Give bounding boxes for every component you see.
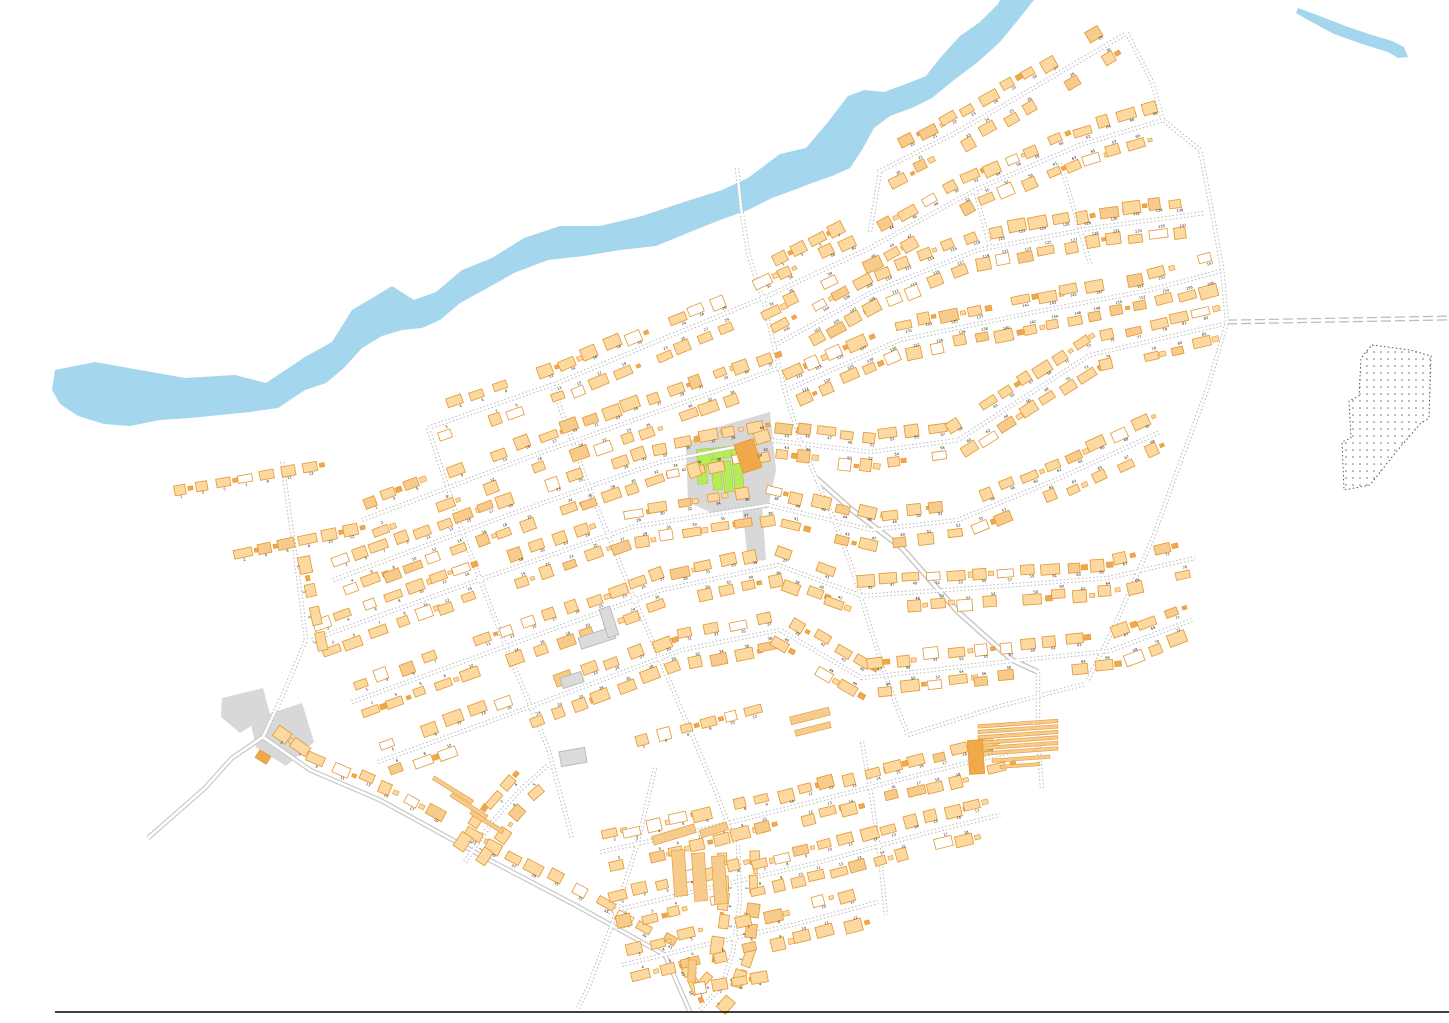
house-number: 120 <box>998 236 1006 241</box>
shed <box>1106 562 1113 568</box>
building <box>840 431 853 441</box>
house-number: 51 <box>926 529 931 534</box>
house-number: 1 <box>180 495 183 499</box>
building <box>772 879 785 893</box>
house-number: 59 <box>1029 574 1035 578</box>
house-number: 136 <box>1176 208 1184 213</box>
building <box>1064 241 1078 254</box>
building <box>450 543 467 556</box>
building <box>730 825 751 841</box>
house-number: 8 <box>504 389 508 394</box>
shed <box>1040 325 1046 330</box>
house-number: 4 <box>662 947 666 952</box>
house-number: 3 <box>500 799 505 803</box>
shed <box>974 834 981 840</box>
building <box>951 264 968 279</box>
house-number: 3 <box>331 640 335 645</box>
building <box>580 498 597 511</box>
house-number: 24 <box>993 99 1000 105</box>
building <box>259 469 275 480</box>
shed <box>738 427 743 432</box>
house-number: 52 <box>935 675 940 679</box>
building <box>216 477 231 488</box>
house-number: 8 <box>443 674 447 679</box>
building <box>1051 589 1065 599</box>
house-number: 3 <box>800 252 804 257</box>
house-number: 15 <box>896 770 901 775</box>
house-number: 133 <box>925 322 933 327</box>
shed <box>783 910 790 916</box>
house-number: 61 <box>1052 161 1058 166</box>
shed <box>988 571 994 576</box>
shed <box>721 493 728 499</box>
house-number: 63 <box>1071 479 1077 485</box>
house-number: 12 <box>752 714 757 719</box>
building <box>668 811 687 824</box>
house-number: 22 <box>952 119 958 125</box>
building <box>711 521 729 532</box>
house-number: 5 <box>223 487 226 491</box>
house-number: 77 <box>1136 335 1141 340</box>
building <box>437 602 454 616</box>
house-number: 46 <box>912 214 919 220</box>
building <box>934 835 954 849</box>
house-number: 5 <box>307 616 311 619</box>
west-road <box>263 462 306 737</box>
shed <box>352 773 357 778</box>
building <box>1149 229 1169 240</box>
house-number: 66 <box>1105 655 1111 660</box>
building <box>343 582 359 595</box>
house-number: 75 <box>1110 338 1115 343</box>
house-number: 41 <box>824 575 830 580</box>
house-number: 70 <box>1182 565 1188 570</box>
building <box>1047 166 1062 178</box>
house-number: 8 <box>744 807 748 812</box>
building <box>846 334 868 353</box>
shed <box>812 455 819 461</box>
house-number: 43 <box>784 434 789 439</box>
building <box>635 535 650 548</box>
house-number: 23 <box>622 593 628 598</box>
house-number: 48 <box>892 520 898 525</box>
house-number: 49 <box>847 441 853 446</box>
shed <box>1084 634 1091 640</box>
house-number: 37 <box>782 558 788 563</box>
building <box>931 598 946 608</box>
building <box>1046 319 1059 330</box>
building <box>819 805 837 817</box>
house-number: 55 <box>983 654 988 658</box>
house-number: 66 <box>1129 117 1135 122</box>
building <box>413 686 426 697</box>
building <box>1040 564 1060 576</box>
house-number: 5 <box>669 959 672 963</box>
shed <box>791 315 797 320</box>
house-number: 28 <box>636 518 642 523</box>
building <box>918 532 935 545</box>
house-number: 14 <box>876 776 882 781</box>
house-number: 81 <box>1182 321 1187 326</box>
shed <box>1017 329 1024 335</box>
house-number: 64 <box>1078 459 1084 465</box>
shed <box>395 486 403 493</box>
shed <box>783 492 788 497</box>
shed <box>453 677 459 682</box>
shed <box>931 314 936 319</box>
building <box>995 253 1010 266</box>
shed <box>1182 605 1188 610</box>
house-number: 29 <box>623 464 629 470</box>
house-number: 52 <box>938 512 943 517</box>
house-number: 5 <box>658 847 661 851</box>
shed <box>662 913 668 919</box>
house-number: 23 <box>593 670 599 675</box>
building <box>1105 143 1121 157</box>
house-number: 31 <box>705 569 710 574</box>
house-number: 58 <box>1010 485 1016 491</box>
building <box>1043 488 1058 502</box>
house-number: 1 <box>781 262 785 267</box>
house-number: 2 <box>642 745 645 749</box>
house-number: 13 <box>502 457 508 462</box>
building <box>625 483 639 496</box>
shed <box>968 649 974 654</box>
house-number: 71 <box>1064 359 1070 365</box>
house-number: 29 <box>642 532 648 537</box>
building <box>902 572 919 581</box>
building <box>1133 300 1147 311</box>
house-number: 44 <box>784 446 790 451</box>
building <box>707 493 720 502</box>
building <box>978 89 1000 107</box>
building <box>913 159 927 173</box>
house-number: 5 <box>738 957 743 960</box>
building <box>1032 360 1053 379</box>
house-number: 12 <box>349 535 354 540</box>
building <box>656 350 673 363</box>
house-number: 129 <box>1092 231 1100 236</box>
building <box>971 520 989 535</box>
house-number: 45 <box>805 434 810 439</box>
building <box>551 391 565 402</box>
building <box>697 588 712 602</box>
building <box>638 426 655 440</box>
house-number: 14 <box>570 366 576 372</box>
cemetery-area <box>1342 345 1431 490</box>
shed <box>864 920 870 925</box>
house-number: 54 <box>894 452 900 457</box>
building <box>893 537 907 548</box>
house-number: 49 <box>912 581 918 585</box>
shed <box>658 426 663 431</box>
building <box>719 584 735 596</box>
house-number: 5 <box>352 633 356 638</box>
public-building <box>559 747 587 766</box>
building <box>1037 245 1055 256</box>
house-number: 2 <box>624 911 627 915</box>
house-number: 132 <box>1133 211 1140 216</box>
house-number: 122 <box>1018 229 1025 234</box>
house-number: 35 <box>741 629 746 634</box>
house-number: 7 <box>245 483 248 487</box>
house-number: 41 <box>794 517 799 522</box>
southwest-road-tail-inner <box>148 737 263 838</box>
building <box>827 221 846 239</box>
shed <box>932 248 937 253</box>
house-number: 2 <box>243 558 246 562</box>
house-number: 40 <box>851 245 857 251</box>
house-number: 30 <box>660 511 666 516</box>
outbuilding-strip <box>671 850 687 897</box>
building <box>718 322 734 335</box>
shed <box>743 859 749 864</box>
building <box>907 784 926 797</box>
shed <box>698 928 703 932</box>
house-number: 38 <box>774 496 780 501</box>
shed <box>493 632 498 637</box>
house-number: 14 <box>457 538 463 544</box>
shed <box>1115 588 1120 592</box>
building <box>571 385 586 398</box>
house-number: 40 <box>795 504 801 509</box>
house-number: 16 <box>919 764 925 769</box>
building <box>763 909 783 924</box>
house-number: 21 <box>594 422 600 427</box>
house-number: 13 <box>852 783 857 788</box>
shed <box>1090 593 1095 597</box>
shed <box>707 840 713 845</box>
shed <box>960 310 966 315</box>
building <box>1192 335 1211 349</box>
house-number: 27 <box>511 863 517 869</box>
house-number: 2 <box>380 521 384 526</box>
shed <box>1212 336 1220 343</box>
house-number: 144 <box>1051 314 1059 319</box>
house-number: 67 <box>1028 379 1034 385</box>
house-number: 53 <box>890 437 895 442</box>
house-number: 12 <box>828 785 833 790</box>
building <box>1072 590 1087 603</box>
house-number: 5 <box>728 925 732 928</box>
house-number: 57 <box>1008 653 1013 657</box>
house-number: 39 <box>768 511 774 516</box>
house-number: 15 <box>933 819 938 824</box>
house-number: 56 <box>981 672 987 677</box>
building <box>930 342 944 355</box>
house-number: 9 <box>460 473 464 478</box>
building <box>551 706 565 720</box>
house-number: 3 <box>666 888 669 892</box>
building <box>1144 351 1159 362</box>
house-number: 69 <box>1150 625 1156 631</box>
building <box>791 876 807 889</box>
shed <box>803 526 810 533</box>
shed <box>643 330 649 335</box>
building <box>691 807 712 823</box>
house-number: 143 <box>1049 300 1056 305</box>
house-number: 13 <box>827 801 832 806</box>
building <box>1099 358 1113 371</box>
house-number: 44 <box>842 515 848 520</box>
house-number: 8 <box>398 598 402 603</box>
house-number: 11 <box>848 842 853 847</box>
house-number: 37 <box>767 622 772 627</box>
house-number: 137 <box>1179 223 1186 228</box>
outbuilding-strip <box>790 707 831 724</box>
house-number: 7 <box>378 621 382 626</box>
building <box>302 461 318 473</box>
house-number: 9 <box>805 854 809 859</box>
house-number: 134 <box>1156 208 1164 213</box>
shed <box>921 682 926 686</box>
building <box>998 669 1014 680</box>
shed <box>1065 130 1071 136</box>
house-number: 3 <box>728 886 732 888</box>
shed <box>1142 203 1147 207</box>
shed <box>981 799 988 805</box>
house-number: 54 <box>959 670 965 675</box>
house-number: 3 <box>301 590 305 593</box>
shed <box>1081 564 1088 570</box>
building <box>1082 152 1101 166</box>
building <box>1178 290 1197 302</box>
house-number: 41 <box>667 944 673 950</box>
building <box>649 850 666 863</box>
house-number: 8 <box>786 862 790 867</box>
house-number: 70 <box>1144 424 1150 430</box>
house-number: 51 <box>933 657 938 661</box>
house-number: 66 <box>1099 445 1105 451</box>
building <box>1072 663 1088 675</box>
house-number: 2 <box>326 626 330 631</box>
house-number: 33 <box>731 563 736 568</box>
house-number: 73 <box>1086 343 1092 349</box>
shed <box>844 605 852 612</box>
shed <box>756 580 762 585</box>
shed <box>810 845 815 849</box>
building <box>768 574 783 589</box>
house-number: 51 <box>870 443 875 448</box>
house-number: 4 <box>350 578 354 583</box>
shed <box>1081 481 1088 488</box>
shed <box>1168 265 1175 271</box>
house-number: 3 <box>392 496 396 501</box>
house-number: 12 <box>442 579 448 584</box>
building <box>413 754 434 769</box>
house-number: 141 <box>1022 303 1030 308</box>
house-number: 150 <box>1115 300 1123 305</box>
shed <box>389 523 397 530</box>
house-number: 11 <box>426 535 432 540</box>
house-number: 6 <box>676 841 680 846</box>
house-number: 21 <box>932 134 938 140</box>
house-number: 12 <box>838 862 843 867</box>
house-number: 28 <box>721 305 727 311</box>
house-number: 148 <box>1093 306 1101 311</box>
building <box>506 406 525 420</box>
house-number: 11 <box>339 776 345 781</box>
house-number: 5 <box>682 822 685 826</box>
house-number: 31 <box>698 384 704 389</box>
house-number: 42 <box>821 507 826 512</box>
house-number: 31 <box>666 525 671 530</box>
building <box>926 781 944 794</box>
house-number: 64 <box>1106 124 1112 129</box>
cemetery <box>1342 345 1431 490</box>
shed <box>990 646 995 650</box>
house-number: 24 <box>585 533 591 539</box>
building <box>830 866 848 878</box>
shed <box>883 659 890 665</box>
house-number: 10 <box>827 847 833 852</box>
house-number: 6 <box>374 607 378 612</box>
house-number: 71 <box>1165 552 1170 557</box>
building <box>886 293 903 307</box>
house-number: 17 <box>974 809 979 814</box>
house-number: 60 <box>1033 479 1039 485</box>
house-number: 13 <box>309 472 314 477</box>
house-number: 13 <box>891 833 896 838</box>
building <box>621 432 635 445</box>
building <box>1068 315 1083 326</box>
house-number: 58 <box>1033 590 1039 594</box>
house-number: 128 <box>1084 221 1092 226</box>
house-number: 60 <box>1059 141 1065 147</box>
house-number: 47 <box>877 667 882 671</box>
house-number: 31 <box>687 636 692 641</box>
building <box>907 600 921 612</box>
building <box>1004 112 1020 127</box>
shed <box>911 658 917 663</box>
building <box>530 715 545 728</box>
house-number: 23 <box>663 346 669 351</box>
building <box>792 929 810 943</box>
house-number: 3 <box>445 425 448 430</box>
building <box>403 560 423 574</box>
house-number: 2 <box>613 837 616 841</box>
shed <box>1039 469 1045 474</box>
building <box>874 855 887 866</box>
shed <box>636 364 641 369</box>
house-number: 125 <box>1044 240 1051 245</box>
house-number: 23 <box>568 554 574 559</box>
house-number: 53 <box>959 657 964 661</box>
shed <box>604 593 611 600</box>
house-number: 14 <box>914 824 920 829</box>
house-number: 15 <box>507 705 513 710</box>
building <box>461 591 476 603</box>
building <box>807 869 825 882</box>
building <box>960 136 976 152</box>
building <box>1175 570 1191 581</box>
house-number: 29 <box>679 392 685 398</box>
building <box>713 951 727 963</box>
house-number: 53 <box>958 580 963 584</box>
house-number: 42 <box>681 467 687 472</box>
house-number: 55 <box>914 435 919 440</box>
house-number: 9 <box>765 802 769 807</box>
house-number: 7 <box>383 549 387 554</box>
house-number: 17 <box>488 509 494 514</box>
building <box>1023 324 1037 335</box>
house-number: 48 <box>933 201 940 207</box>
house-number: 19 <box>575 609 581 615</box>
house-number: 64 <box>1081 659 1087 664</box>
house-number: 7 <box>312 641 316 644</box>
building <box>1173 227 1186 240</box>
shed <box>512 771 519 778</box>
